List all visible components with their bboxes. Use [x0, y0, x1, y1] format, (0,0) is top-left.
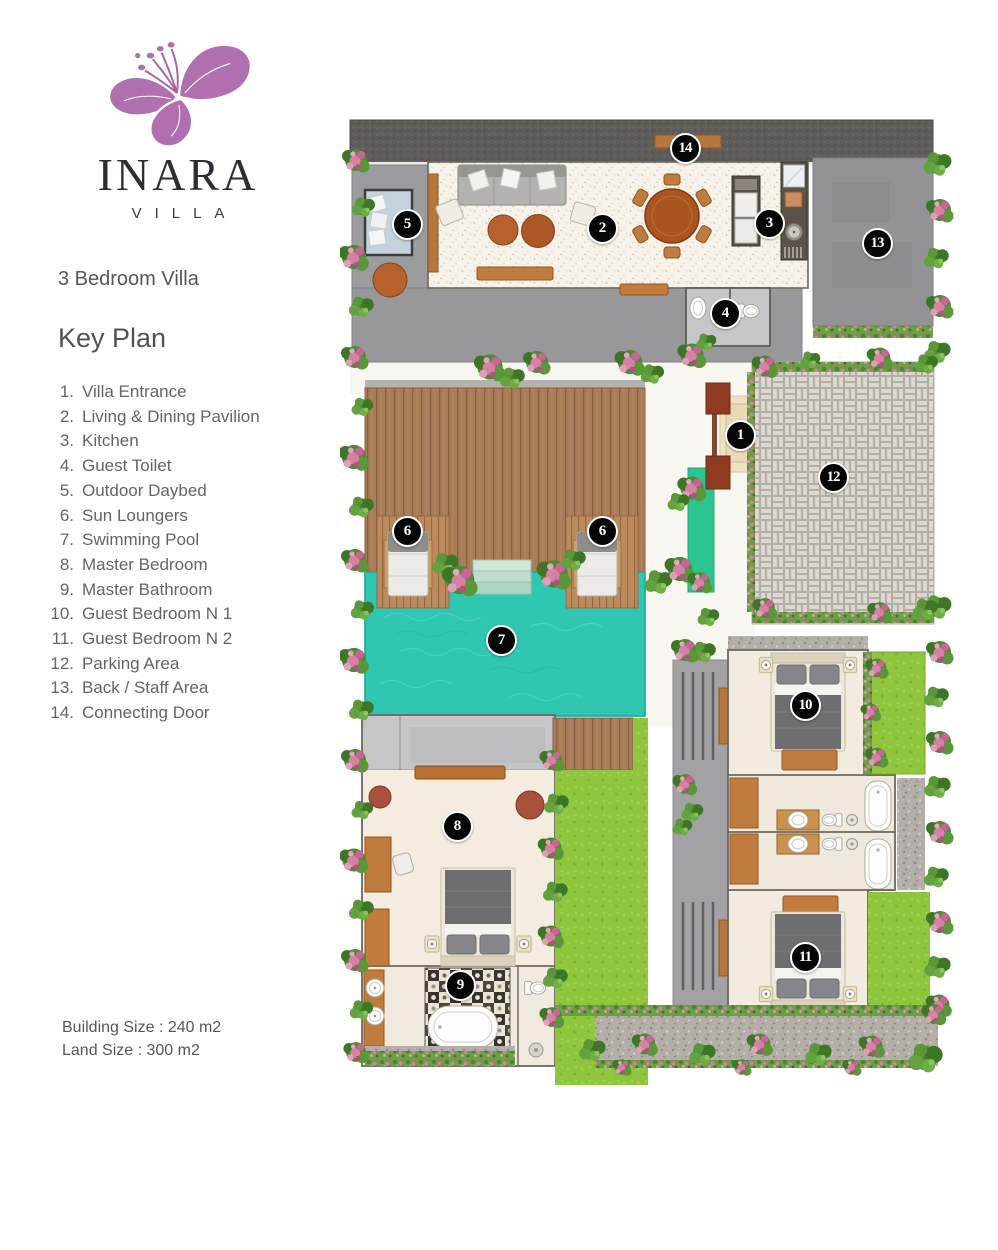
key-plan-item-number: 13.: [40, 676, 82, 701]
villa-key-plan-page: { "sidebar": { "brand": "INARA", "brand_…: [0, 0, 998, 1250]
key-plan-item-number: 7.: [40, 528, 82, 553]
marker-connecting-door: 14: [670, 133, 701, 164]
marker-sun-lounger-left: 6: [392, 516, 423, 547]
key-plan-item: 10.Guest Bedroom N 1: [40, 602, 316, 627]
floor-plan: 12345667891011121314: [340, 112, 968, 1097]
marker-guest-bedroom-1: 10: [790, 690, 821, 721]
key-plan-item-number: 3.: [40, 429, 82, 454]
walkway: [673, 660, 728, 1020]
key-plan-item-label: Villa Entrance: [82, 380, 316, 405]
key-plan-item-label: Back / Staff Area: [82, 676, 316, 701]
kitchen-counter: [781, 162, 807, 260]
marker-living-dining-pavilion: 2: [587, 213, 618, 244]
key-plan-item: 11.Guest Bedroom N 2: [40, 627, 316, 652]
living-dining-pavilion-zone: [428, 162, 808, 295]
key-plan-item: 1.Villa Entrance: [40, 380, 316, 405]
key-plan-item-number: 1.: [40, 380, 82, 405]
size-info: Building Size : 240 m2 Land Size : 300 m…: [62, 1016, 221, 1062]
key-plan-item: 13.Back / Staff Area: [40, 676, 316, 701]
key-plan-item-number: 5.: [40, 479, 82, 504]
key-plan-item-label: Master Bedroom: [82, 553, 316, 578]
marker-master-bedroom: 8: [442, 811, 473, 842]
coffee-table: [488, 215, 518, 245]
key-plan-item-label: Master Bathroom: [82, 578, 316, 603]
pool-steps: [473, 560, 531, 594]
bench: [365, 909, 389, 966]
sidebar: INARA VILLA 3 Bedroom Villa Key Plan 1.V…: [40, 34, 316, 726]
key-plan-item-label: Guest Toilet: [82, 454, 316, 479]
marker-parking-area: 12: [818, 462, 849, 493]
coffee-table: [522, 215, 555, 248]
marker-swimming-pool: 7: [486, 625, 517, 656]
marker-back-staff-area: 13: [862, 228, 893, 259]
marker-sun-lounger-right: 6: [587, 516, 618, 547]
key-plan-item-number: 4.: [40, 454, 82, 479]
sofa: [458, 165, 566, 205]
marker-outdoor-daybed: 5: [392, 209, 423, 240]
key-plan-title: Key Plan: [58, 323, 316, 354]
land-size: Land Size : 300 m2: [62, 1039, 221, 1062]
key-plan-item-label: Parking Area: [82, 652, 316, 677]
side-table: [369, 786, 391, 808]
marker-guest-bedroom-2: 11: [790, 942, 821, 973]
key-plan-item: 4.Guest Toilet: [40, 454, 316, 479]
side-table: [516, 791, 544, 819]
wood-console: [620, 284, 668, 295]
key-plan-item-label: Connecting Door: [82, 701, 316, 726]
marker-kitchen: 3: [754, 208, 785, 239]
key-plan-item: 5.Outdoor Daybed: [40, 479, 316, 504]
key-plan-item-label: Guest Bedroom N 1: [82, 602, 316, 627]
master-bed: [441, 868, 515, 966]
key-plan-item-number: 12.: [40, 652, 82, 677]
villa-type-subtitle: 3 Bedroom Villa: [58, 268, 316, 291]
master-suite-zone: [362, 715, 555, 1066]
key-plan-item-label: Sun Loungers: [82, 504, 316, 529]
floor-plan-graphic: [340, 112, 968, 1097]
key-plan-item: 3.Kitchen: [40, 429, 316, 454]
key-plan-item-number: 9.: [40, 578, 82, 603]
key-plan-item-number: 14.: [40, 701, 82, 726]
key-plan-item-label: Kitchen: [82, 429, 316, 454]
key-plan-item: 12.Parking Area: [40, 652, 316, 677]
key-plan-item: 9.Master Bathroom: [40, 578, 316, 603]
key-plan-item-number: 10.: [40, 602, 82, 627]
parking-area-zone: [747, 362, 934, 624]
wood-bench: [415, 766, 505, 779]
key-plan-list: 1.Villa Entrance2.Living & Dining Pavili…: [40, 380, 316, 726]
marker-villa-entrance: 1: [725, 420, 756, 451]
kitchen-island: [732, 176, 760, 246]
key-plan-item-number: 2.: [40, 405, 82, 430]
marker-guest-toilet: 4: [710, 298, 741, 329]
key-plan-item: 6.Sun Loungers: [40, 504, 316, 529]
key-plan-item-label: Living & Dining Pavilion: [82, 405, 316, 430]
building-size: Building Size : 240 m2: [62, 1016, 221, 1039]
key-plan-item-label: Guest Bedroom N 2: [82, 627, 316, 652]
key-plan-item-label: Swimming Pool: [82, 528, 316, 553]
brand-name: INARA: [40, 152, 316, 198]
brand-subname: VILLA: [40, 205, 316, 222]
key-plan-item-number: 8.: [40, 553, 82, 578]
desk: [365, 837, 391, 892]
key-plan-item: 14.Connecting Door: [40, 701, 316, 726]
key-plan-item: 7.Swimming Pool: [40, 528, 316, 553]
bougainvillea-logo-icon: [92, 34, 264, 152]
wood-bench: [477, 267, 553, 280]
key-plan-item: 8.Master Bedroom: [40, 553, 316, 578]
key-plan-item-number: 6.: [40, 504, 82, 529]
key-plan-item-label: Outdoor Daybed: [82, 479, 316, 504]
key-plan-item-number: 11.: [40, 627, 82, 652]
key-plan-item: 2.Living & Dining Pavilion: [40, 405, 316, 430]
marker-master-bathroom: 9: [445, 970, 476, 1001]
